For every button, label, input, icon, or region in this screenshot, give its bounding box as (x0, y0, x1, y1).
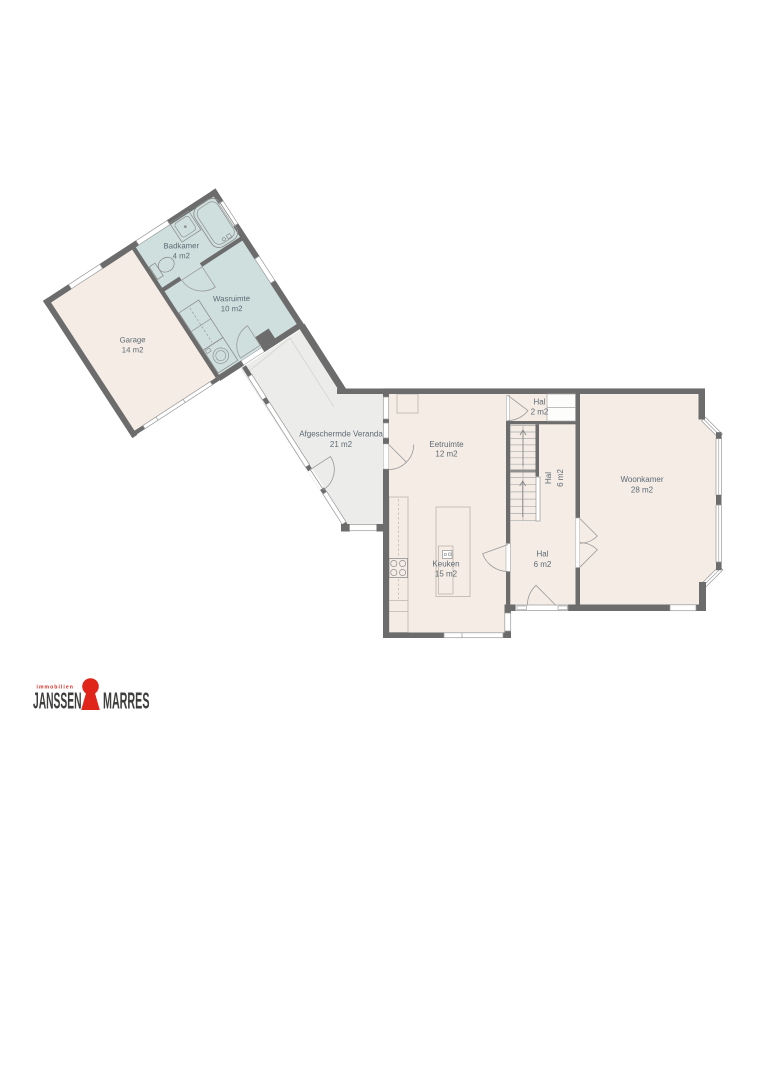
svg-text:12 m2: 12 m2 (435, 449, 458, 458)
svg-text:Eetruimte: Eetruimte (429, 440, 464, 449)
svg-text:Badkamer: Badkamer (164, 241, 200, 250)
svg-text:6 m2: 6 m2 (556, 469, 565, 487)
svg-text:Garage: Garage (120, 335, 146, 344)
svg-text:Keuken: Keuken (432, 560, 459, 569)
svg-text:4 m2: 4 m2 (173, 251, 190, 260)
svg-text:Hal: Hal (544, 472, 553, 484)
svg-text:Woonkamer: Woonkamer (621, 475, 664, 484)
svg-text:6 m2: 6 m2 (534, 560, 552, 569)
svg-text:2 m2: 2 m2 (531, 407, 549, 416)
svg-text:Wasruimte: Wasruimte (213, 294, 250, 303)
svg-text:JANSSEN: JANSSEN (33, 688, 82, 714)
svg-text:10 m2: 10 m2 (221, 304, 243, 313)
svg-text:Hal: Hal (536, 549, 548, 558)
svg-text:15 m2: 15 m2 (435, 570, 458, 579)
svg-text:28 m2: 28 m2 (631, 485, 654, 494)
svg-text:21 m2: 21 m2 (330, 440, 353, 449)
svg-text:14 m2: 14 m2 (122, 345, 144, 354)
svg-text:Hal: Hal (533, 398, 545, 407)
svg-text:Afgeschermde Veranda: Afgeschermde Veranda (299, 430, 383, 439)
svg-text:MARRES: MARRES (103, 688, 150, 714)
